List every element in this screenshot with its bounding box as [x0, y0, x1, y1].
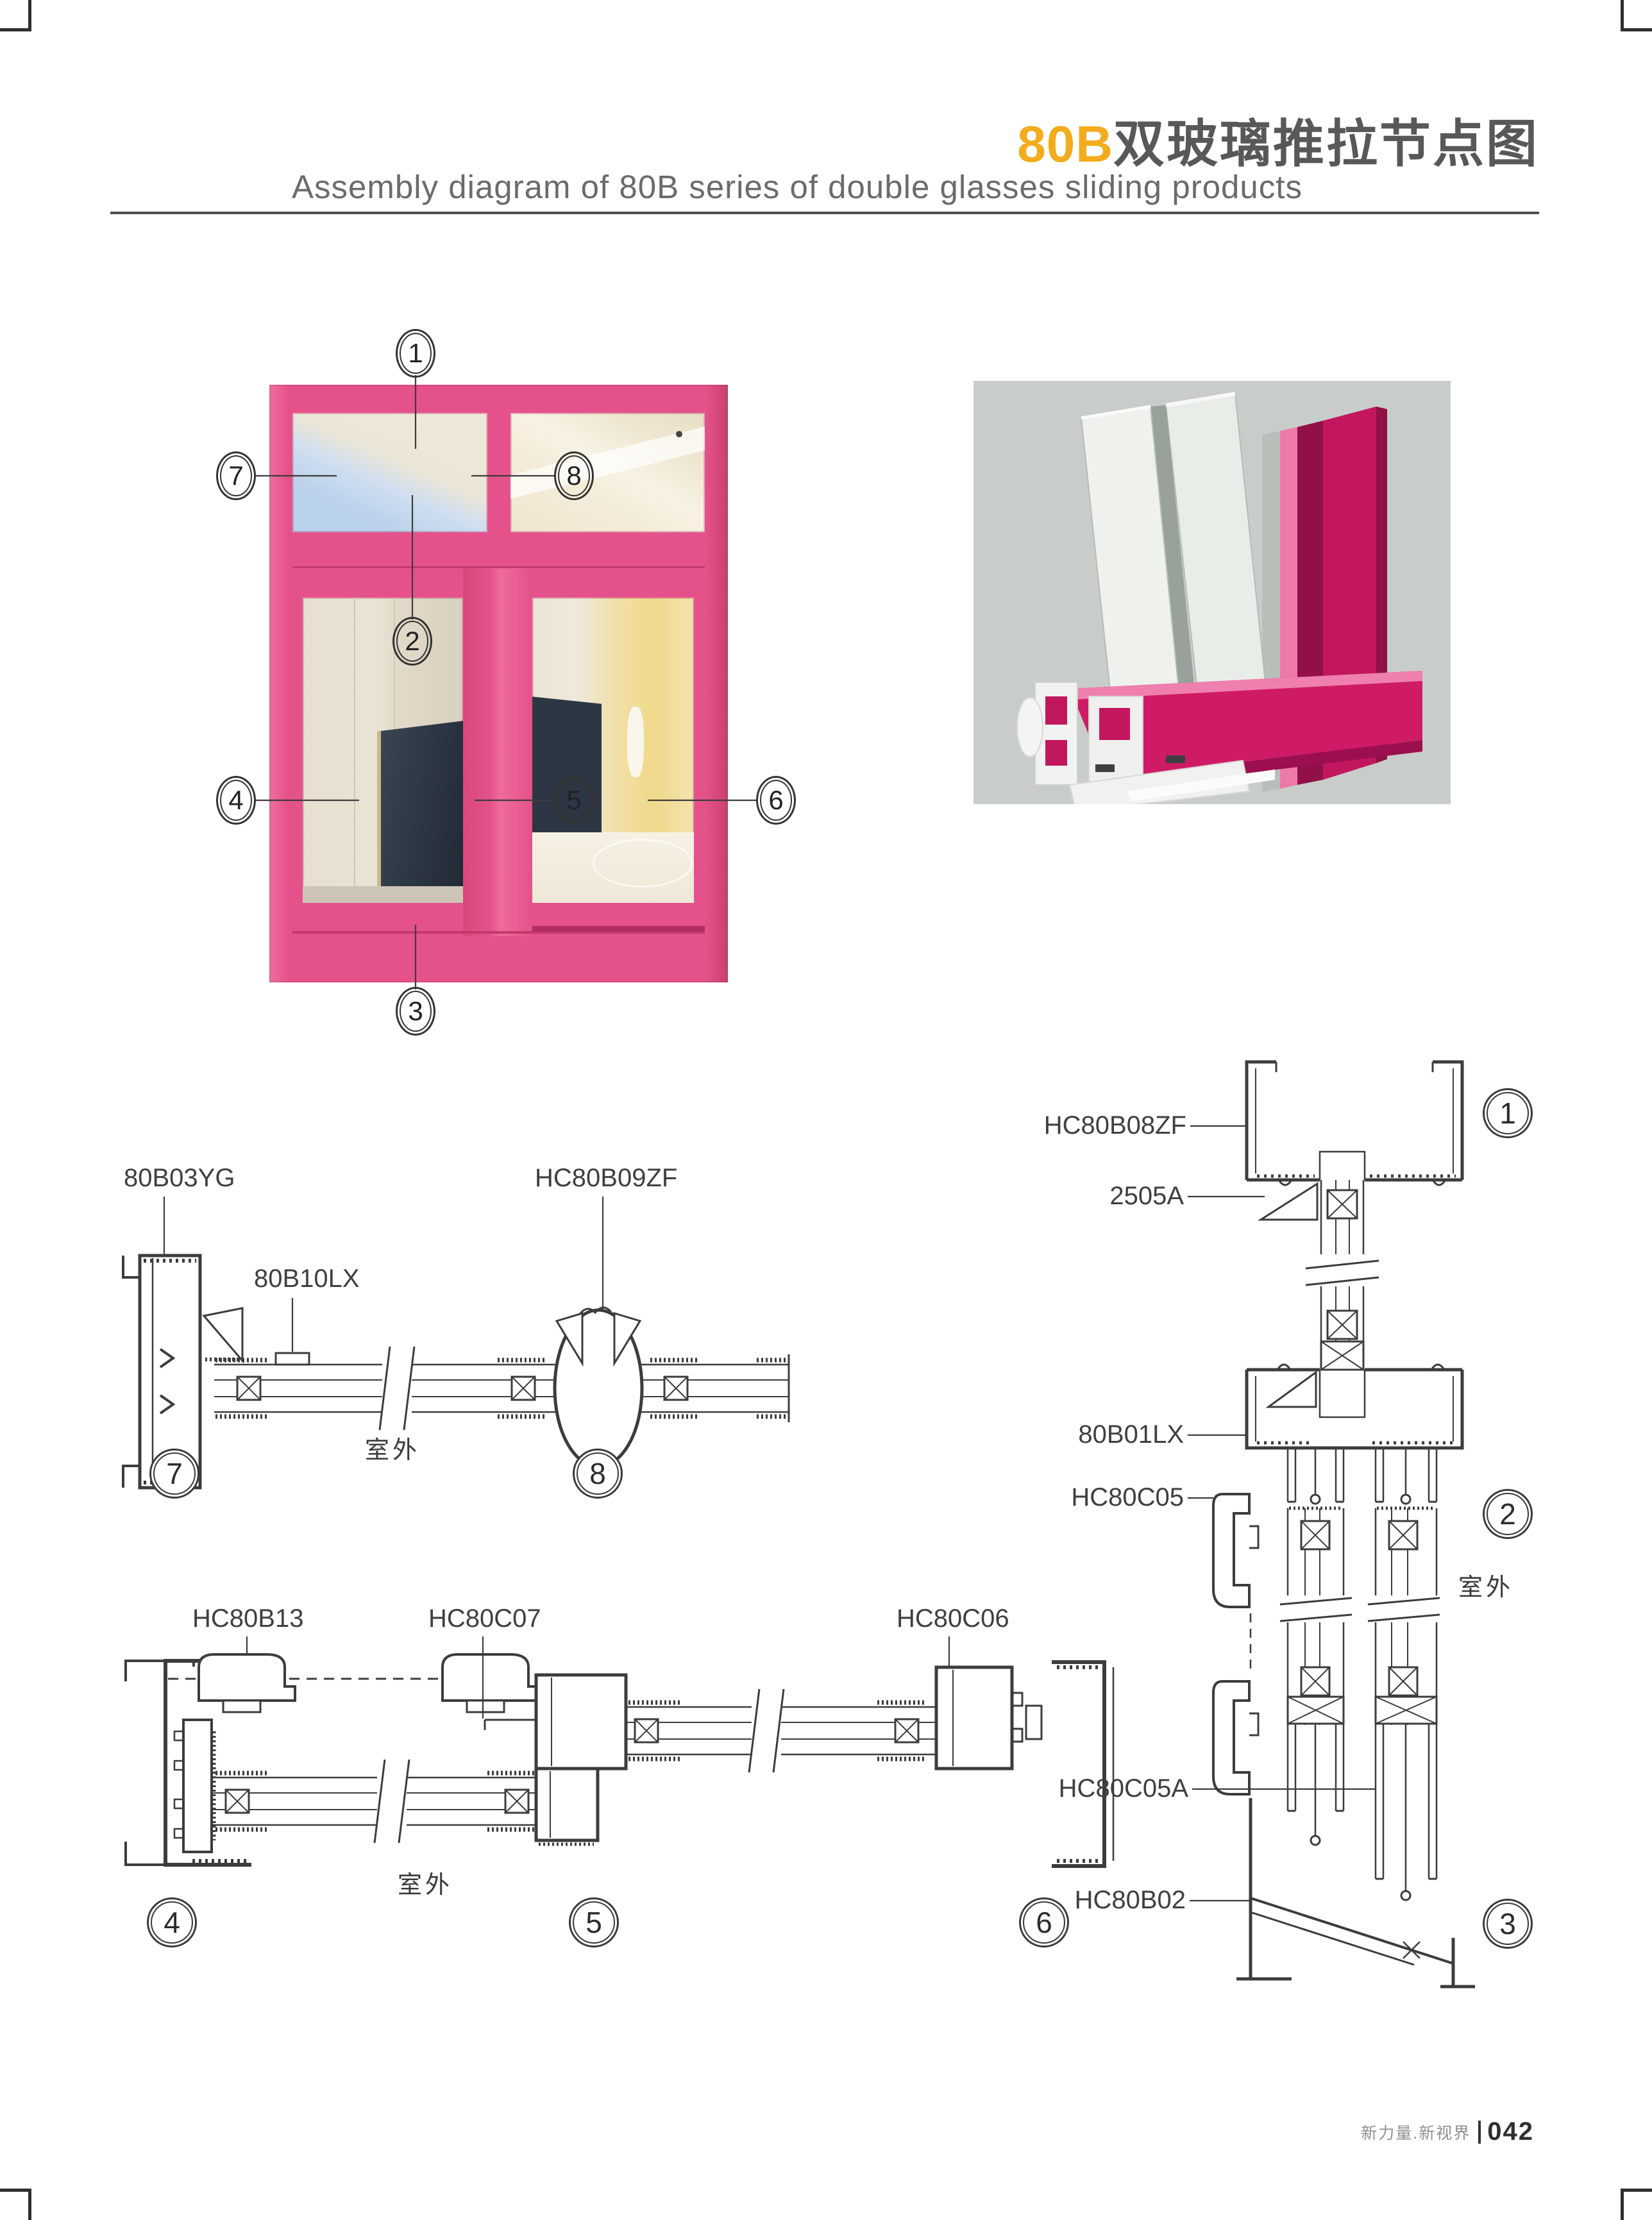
section-circle-4-number: 4 — [164, 1905, 180, 1940]
window-photo-top-right — [510, 413, 705, 532]
callout-7-number: 7 — [228, 460, 243, 491]
outdoor-label-123: 室外 — [1458, 1567, 1513, 1602]
page-title: 80B双玻璃推拉节点图 — [1017, 103, 1539, 177]
wardrobe-seam — [354, 598, 355, 903]
section-circle-1: 1 — [1483, 1088, 1533, 1138]
callout-8-number: 8 — [566, 460, 581, 491]
page-title-cn: 双玻璃推拉节点图 — [1113, 115, 1539, 172]
callout-4: 4 — [216, 776, 256, 825]
callout-5-number: 5 — [566, 785, 581, 816]
outdoor-label-456: 室外 — [398, 1865, 453, 1900]
part-label-hc80b08zf: HC80B08ZF — [1044, 1111, 1186, 1140]
part-label-hc80b13: HC80B13 — [192, 1604, 303, 1633]
section-circle-2-number: 2 — [1499, 1497, 1516, 1531]
callout-5: 5 — [554, 776, 594, 825]
section-circle-2: 2 — [1483, 1489, 1533, 1539]
section-circle-6-number: 6 — [1036, 1905, 1052, 1940]
window-photo-bottom-right — [532, 598, 694, 903]
section-1-2-3-drawing — [1188, 1062, 1475, 1987]
spotlight-dot — [676, 431, 682, 437]
callout-2: 2 — [392, 617, 432, 666]
part-label-hc80c05a: HC80C05A — [1059, 1774, 1188, 1803]
callout-6-number: 6 — [768, 785, 783, 816]
section-4-5-6-drawing — [126, 1636, 1113, 1866]
part-label-hc80b02: HC80B02 — [1075, 1886, 1186, 1915]
part-label-hc80b09zf: HC80B09ZF — [535, 1164, 677, 1193]
vase — [627, 707, 644, 777]
part-label-80b01lx: 80B01LX — [1078, 1420, 1184, 1449]
callout-6: 6 — [756, 776, 796, 825]
page-title-series: 80B — [1017, 115, 1113, 172]
footer-slogan: 新力量.新视界 — [1361, 2121, 1471, 2144]
window-photo-top-left — [292, 413, 487, 532]
crop-mark-bottom-right — [1621, 2189, 1652, 2220]
floor-strip — [303, 886, 463, 903]
catalog-page: { "header": { "title_accent": "80B", "ti… — [0, 0, 1652, 2220]
crop-mark-top-left — [0, 0, 31, 31]
part-label-hc80c06: HC80C06 — [897, 1604, 1009, 1633]
window-photo-bottom-left — [303, 598, 463, 903]
callout-7: 7 — [216, 451, 256, 500]
section-circle-8-number: 8 — [589, 1456, 606, 1491]
section-circle-3-number: 3 — [1499, 1906, 1516, 1941]
section-circle-7-number: 7 — [166, 1456, 183, 1491]
window-overview-illustration — [269, 385, 728, 982]
part-label-hc80c07: HC80C07 — [428, 1604, 541, 1633]
crop-mark-top-right — [1621, 0, 1652, 31]
section-circle-4: 4 — [147, 1897, 197, 1947]
footer-page-number: 042 — [1487, 2117, 1534, 2146]
callout-4-number: 4 — [228, 785, 243, 816]
callout-3-number: 3 — [408, 996, 423, 1027]
footer-divider — [1478, 2121, 1481, 2144]
callout-3: 3 — [396, 987, 435, 1036]
part-label-2505a: 2505A — [1109, 1182, 1184, 1211]
outdoor-label-78: 室外 — [365, 1430, 420, 1465]
callout-2-number: 2 — [405, 626, 419, 657]
section-circle-5: 5 — [569, 1897, 619, 1947]
track-shadow — [532, 926, 705, 932]
page-footer: 新力量.新视界 042 — [1361, 2117, 1534, 2146]
section-circle-7: 7 — [149, 1449, 199, 1499]
callout-1: 1 — [396, 329, 435, 378]
profile-3d-render — [973, 381, 1451, 804]
crop-mark-bottom-left — [0, 2189, 31, 2220]
page-subtitle: Assembly diagram of 80B series of double… — [292, 168, 1302, 206]
tv-screen — [377, 720, 463, 903]
technical-sections-drawing — [0, 0, 1652, 2220]
section-circle-6: 6 — [1019, 1897, 1069, 1947]
part-label-80b10lx: 80B10LX — [254, 1265, 360, 1293]
section-circle-1-number: 1 — [1499, 1096, 1516, 1131]
section-7-8-drawing — [123, 1197, 789, 1488]
section-circle-3: 3 — [1483, 1899, 1533, 1949]
header-rule — [110, 212, 1539, 214]
part-label-hc80c05: HC80C05 — [1071, 1483, 1184, 1512]
section-circle-5-number: 5 — [586, 1905, 602, 1940]
interlock-stile-shade — [463, 568, 531, 936]
section-circle-8: 8 — [573, 1449, 623, 1499]
callout-8: 8 — [554, 451, 594, 500]
glass-table-rim — [593, 839, 693, 887]
callout-1-number: 1 — [408, 338, 423, 369]
ceiling-cove-highlight — [510, 417, 705, 502]
part-label-80b03yg: 80B03YG — [124, 1164, 235, 1193]
